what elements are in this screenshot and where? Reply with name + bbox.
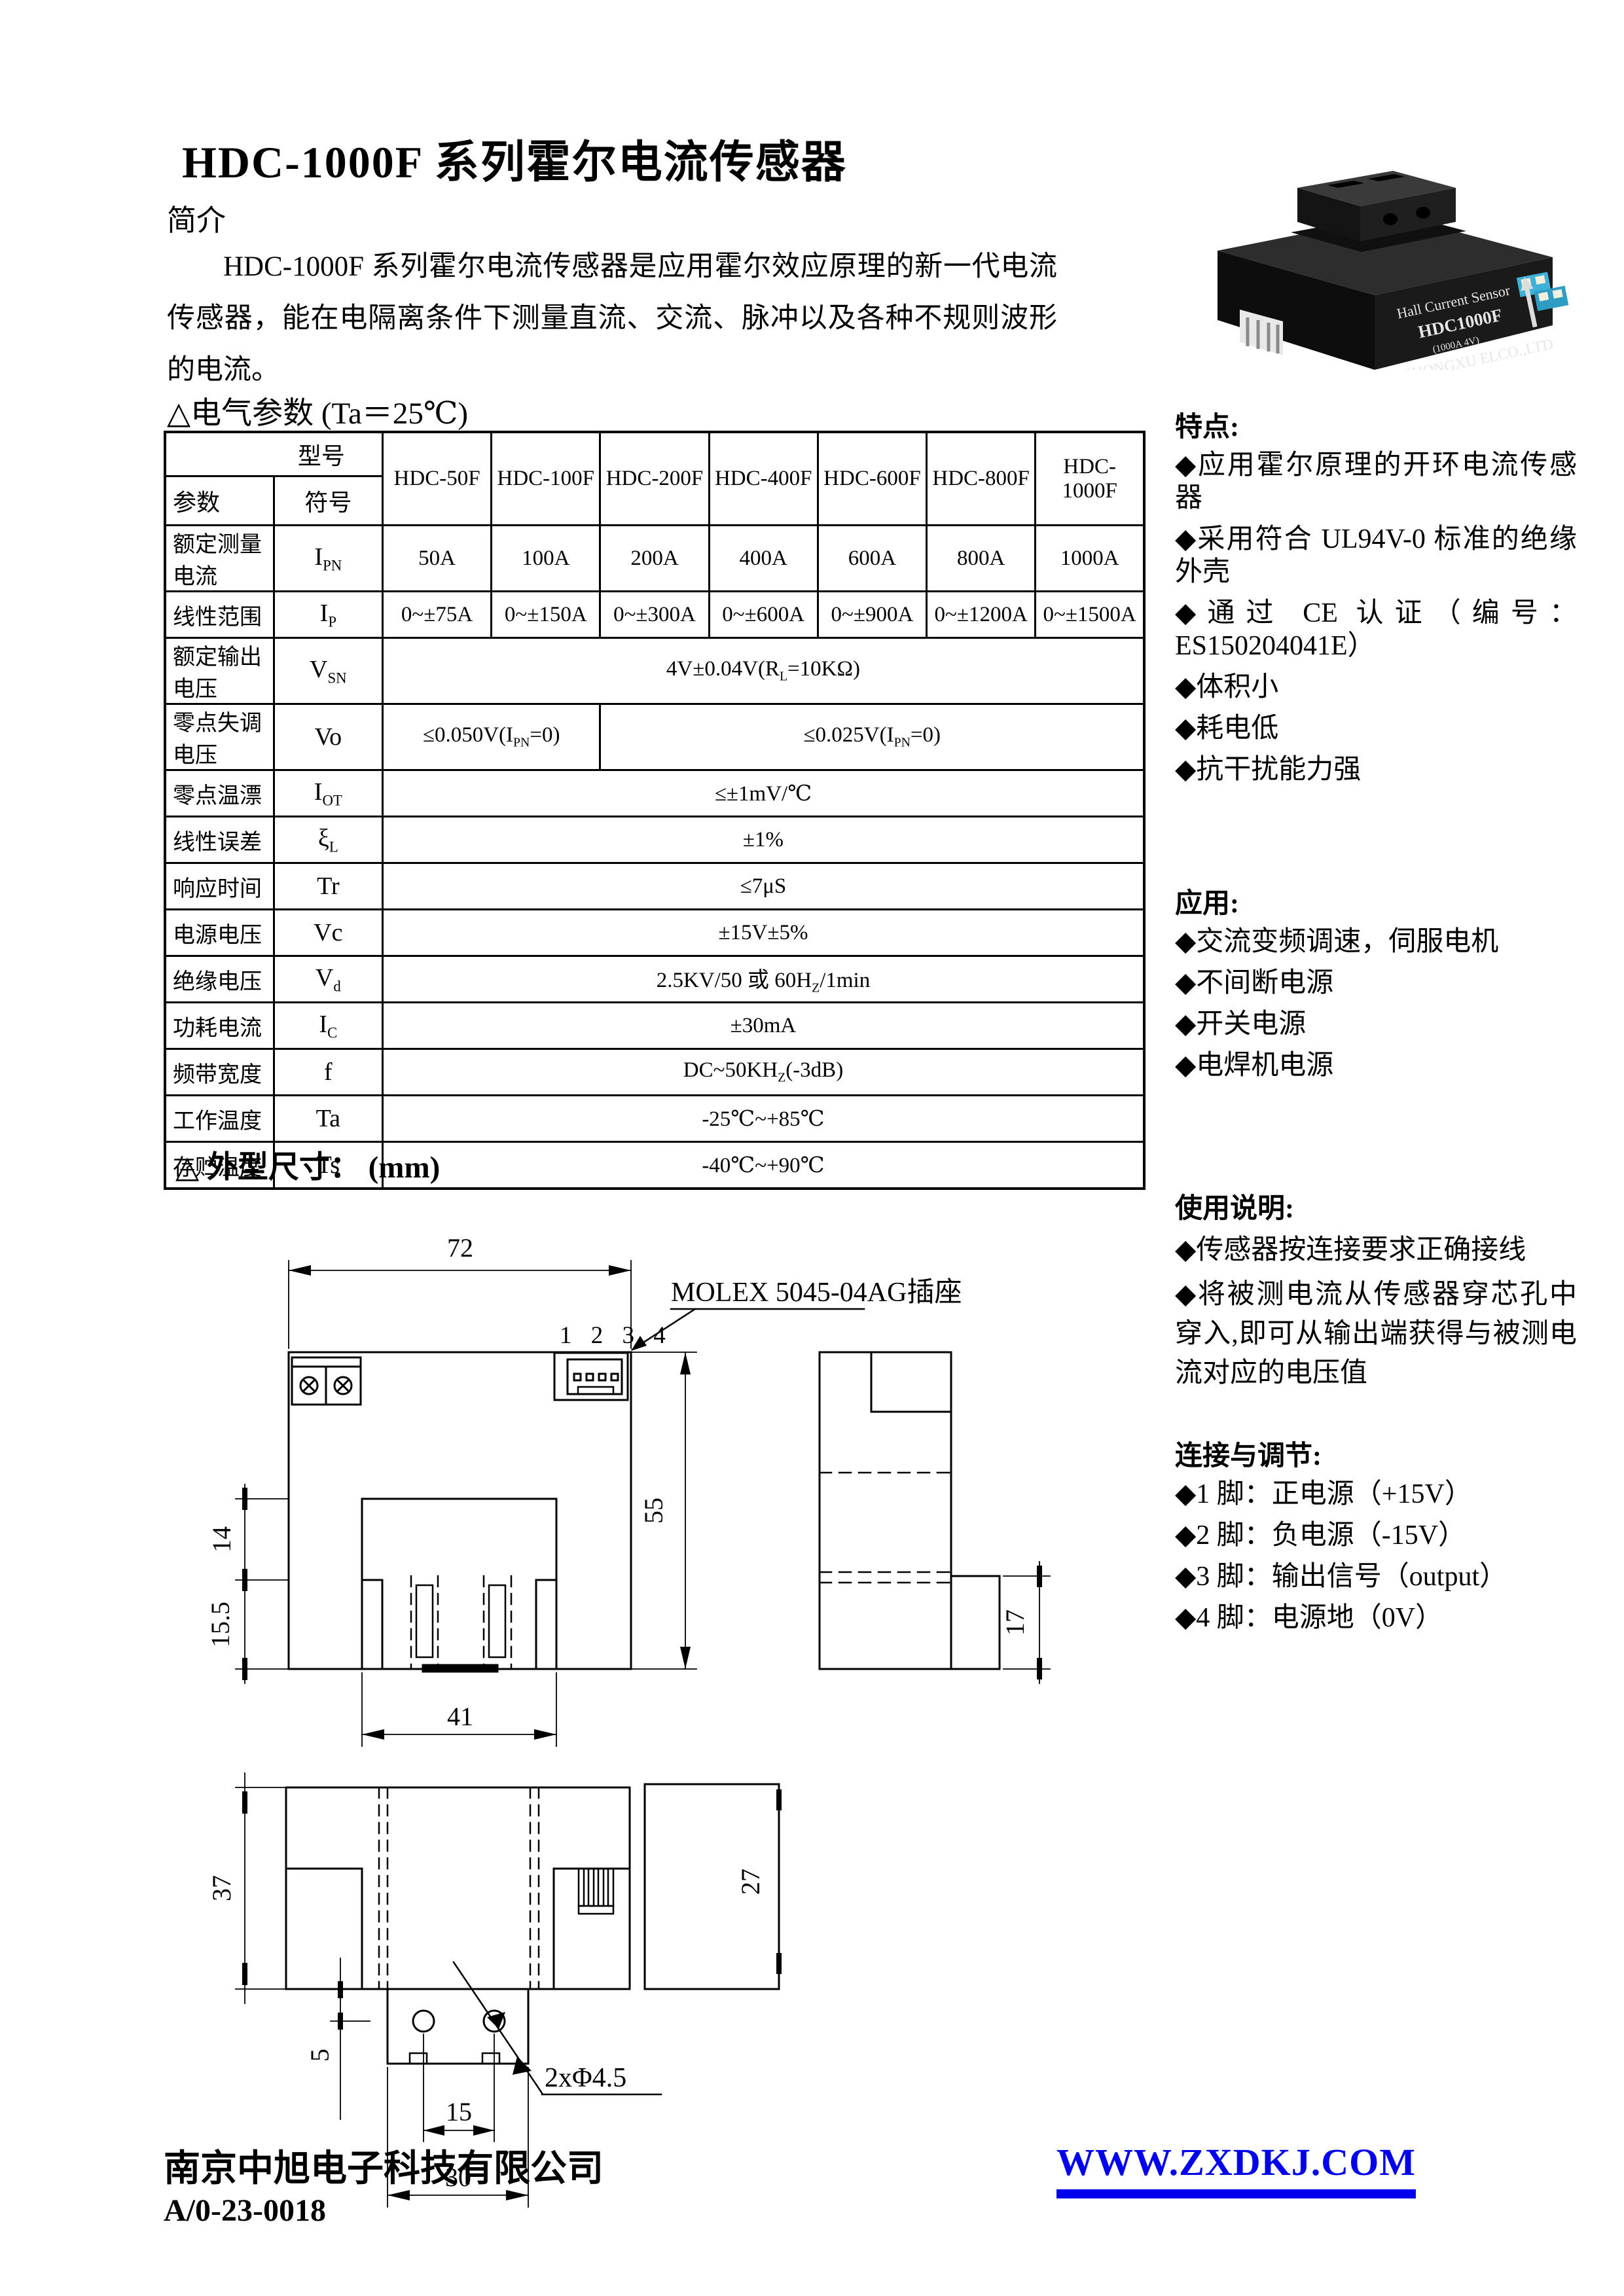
applications-heading: 应用: bbox=[1175, 888, 1577, 920]
list-item: ◆交流变频调速，伺服电机 bbox=[1175, 925, 1577, 958]
list-item: ◆将被测电流从传感器穿芯孔中穿入,即可从输出端获得与被测电流对应的电压值 bbox=[1175, 1275, 1577, 1393]
list-item: ◆体积小 bbox=[1175, 671, 1577, 704]
datasheet-page: HDC-1000F 系列霍尔电流传感器 简介 HDC-1000F 系列霍尔电流传… bbox=[0, 0, 1624, 2296]
usage-list: ◆传感器按连接要求正确接线 ◆将被测电流从传感器穿芯孔中穿入,即可从输出端获得与… bbox=[1175, 1230, 1577, 1393]
footer-doc-code: A/0-23-0018 bbox=[164, 2193, 326, 2229]
electrical-parameters-table: 型号HDC-50FHDC-100FHDC-200FHDC-400FHDC-600… bbox=[164, 431, 1146, 1190]
product-photo: Hall Current Sensor HDC1000F (1000A 4V) … bbox=[1199, 152, 1569, 370]
holes-callout-label: 2xΦ4.5 bbox=[545, 2063, 626, 2093]
pin-numbers-label: 1 2 3 4 bbox=[560, 1322, 672, 1349]
dims-heading-text: △ 外型尺寸： bbox=[175, 1151, 361, 1185]
dim-label-55: 55 bbox=[639, 1498, 668, 1524]
list-item: ◆开关电源 bbox=[1175, 1008, 1577, 1041]
dim-label-37: 37 bbox=[207, 1875, 236, 1901]
list-item: ◆不间断电源 bbox=[1175, 967, 1577, 999]
footer-company-name: 南京中旭电子科技有限公司 bbox=[164, 2139, 604, 2192]
hole-icon bbox=[1416, 207, 1430, 219]
usage-section: 使用说明: ◆传感器按连接要求正确接线 ◆将被测电流从传感器穿芯孔中穿入,即可从… bbox=[1175, 1193, 1577, 1398]
dim-label-41: 41 bbox=[447, 1702, 473, 1731]
dim-label-27: 27 bbox=[736, 1869, 765, 1895]
dim-label-15-5: 15.5 bbox=[206, 1602, 235, 1647]
dims-section-heading: △ 外型尺寸： (mm) bbox=[175, 1141, 440, 1187]
intro-paragraph: HDC-1000F 系列霍尔电流传感器是应用霍尔效应原理的新一代电流传感器，能在… bbox=[167, 241, 1057, 396]
dim-label-15: 15 bbox=[446, 2097, 472, 2126]
params-heading-condition: (Ta＝25℃) bbox=[321, 397, 468, 431]
dim-label-5: 5 bbox=[305, 2049, 334, 2062]
list-item: ◆4 脚：电源地（0V） bbox=[1175, 1602, 1577, 1634]
features-heading: 特点: bbox=[1175, 411, 1577, 444]
list-item: ◆电焊机电源 bbox=[1175, 1049, 1577, 1082]
intro-heading: 简介 bbox=[167, 196, 226, 239]
dim-label-14: 14 bbox=[207, 1526, 236, 1552]
list-item: ◆1 脚：正电源（+15V） bbox=[1175, 1478, 1577, 1511]
side-view-body bbox=[820, 1352, 951, 1669]
hole-icon bbox=[1383, 213, 1398, 225]
applications-section: 应用: ◆交流变频调速，伺服电机 ◆不间断电源 ◆开关电源 ◆电焊机电源 bbox=[1175, 888, 1577, 1090]
dims-heading-unit: (mm) bbox=[369, 1151, 441, 1185]
list-item: ◆通过 CE 认证（编号：ES150204041E） bbox=[1175, 597, 1577, 662]
list-item: ◆2 脚：负电源（-15V） bbox=[1175, 1519, 1577, 1552]
connection-heading: 连接与调节: bbox=[1175, 1440, 1577, 1473]
params-heading-text: △电气参数 bbox=[167, 397, 314, 431]
list-item: ◆采用符合 UL94V-0 标准的绝缘外壳 bbox=[1175, 523, 1577, 588]
dimension-drawing: 72 55 14 15.5 41 17 37 27 5 15 30 2xΦ4.5… bbox=[196, 1230, 1126, 2212]
applications-list: ◆交流变频调速，伺服电机 ◆不间断电源 ◆开关电源 ◆电焊机电源 bbox=[1175, 925, 1577, 1082]
list-item: ◆应用霍尔原理的开环电流传感器 bbox=[1175, 449, 1577, 514]
list-item: ◆3 脚：输出信号（output） bbox=[1175, 1560, 1577, 1593]
molex-callout-label: MOLEX 5045-04AG插座 bbox=[671, 1277, 962, 1308]
connection-section: 连接与调节: ◆1 脚：正电源（+15V） ◆2 脚：负电源（-15V） ◆3 … bbox=[1175, 1440, 1577, 1643]
footer-website-link[interactable]: WWW.ZXDKJ.COM bbox=[1056, 2140, 1416, 2198]
mounting-hole-icon bbox=[413, 2011, 434, 2032]
usage-heading: 使用说明: bbox=[1175, 1193, 1577, 1225]
params-table: 型号HDC-50FHDC-100FHDC-200FHDC-400FHDC-600… bbox=[164, 431, 1146, 1190]
features-list: ◆应用霍尔原理的开环电流传感器 ◆采用符合 UL94V-0 标准的绝缘外壳 ◆通… bbox=[1175, 449, 1577, 786]
dim-label-72: 72 bbox=[447, 1233, 473, 1263]
page-title: HDC-1000F 系列霍尔电流传感器 bbox=[182, 126, 847, 190]
list-item: ◆抗干扰能力强 bbox=[1175, 753, 1577, 786]
connection-list: ◆1 脚：正电源（+15V） ◆2 脚：负电源（-15V） ◆3 脚：输出信号（… bbox=[1175, 1478, 1577, 1634]
params-section-heading: △电气参数 (Ta＝25℃) bbox=[167, 387, 468, 433]
features-section: 特点: ◆应用霍尔原理的开环电流传感器 ◆采用符合 UL94V-0 标准的绝缘外… bbox=[1175, 411, 1577, 795]
list-item: ◆传感器按连接要求正确接线 bbox=[1175, 1230, 1577, 1270]
list-item: ◆耗电低 bbox=[1175, 712, 1577, 745]
dim-label-17: 17 bbox=[1000, 1609, 1030, 1636]
